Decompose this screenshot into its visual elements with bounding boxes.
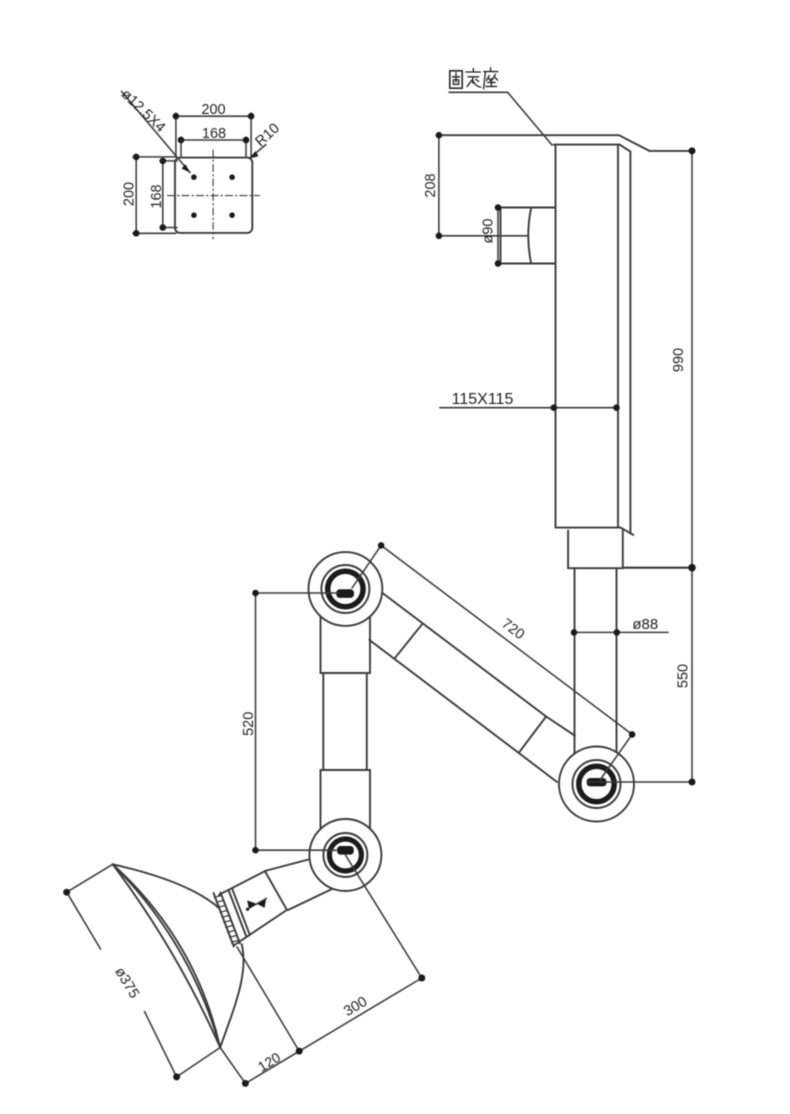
svg-text:550: 550 (675, 664, 691, 688)
svg-text:200: 200 (201, 102, 225, 118)
svg-text:ø12.5X4: ø12.5X4 (118, 86, 169, 136)
svg-text:ø375: ø375 (111, 965, 142, 1002)
svg-text:300: 300 (341, 994, 370, 1020)
svg-text:115X115: 115X115 (452, 391, 514, 408)
svg-text:ø90: ø90 (481, 219, 497, 244)
svg-text:520: 520 (241, 712, 257, 736)
svg-text:R10: R10 (252, 120, 282, 150)
svg-text:990: 990 (671, 348, 687, 372)
svg-text:200: 200 (121, 182, 137, 206)
svg-text:ø88: ø88 (632, 616, 658, 633)
svg-text:168: 168 (202, 126, 226, 142)
svg-text:168: 168 (149, 184, 165, 208)
svg-text:120: 120 (255, 1049, 283, 1075)
svg-text:720: 720 (498, 616, 527, 643)
svg-text:208: 208 (423, 173, 439, 197)
